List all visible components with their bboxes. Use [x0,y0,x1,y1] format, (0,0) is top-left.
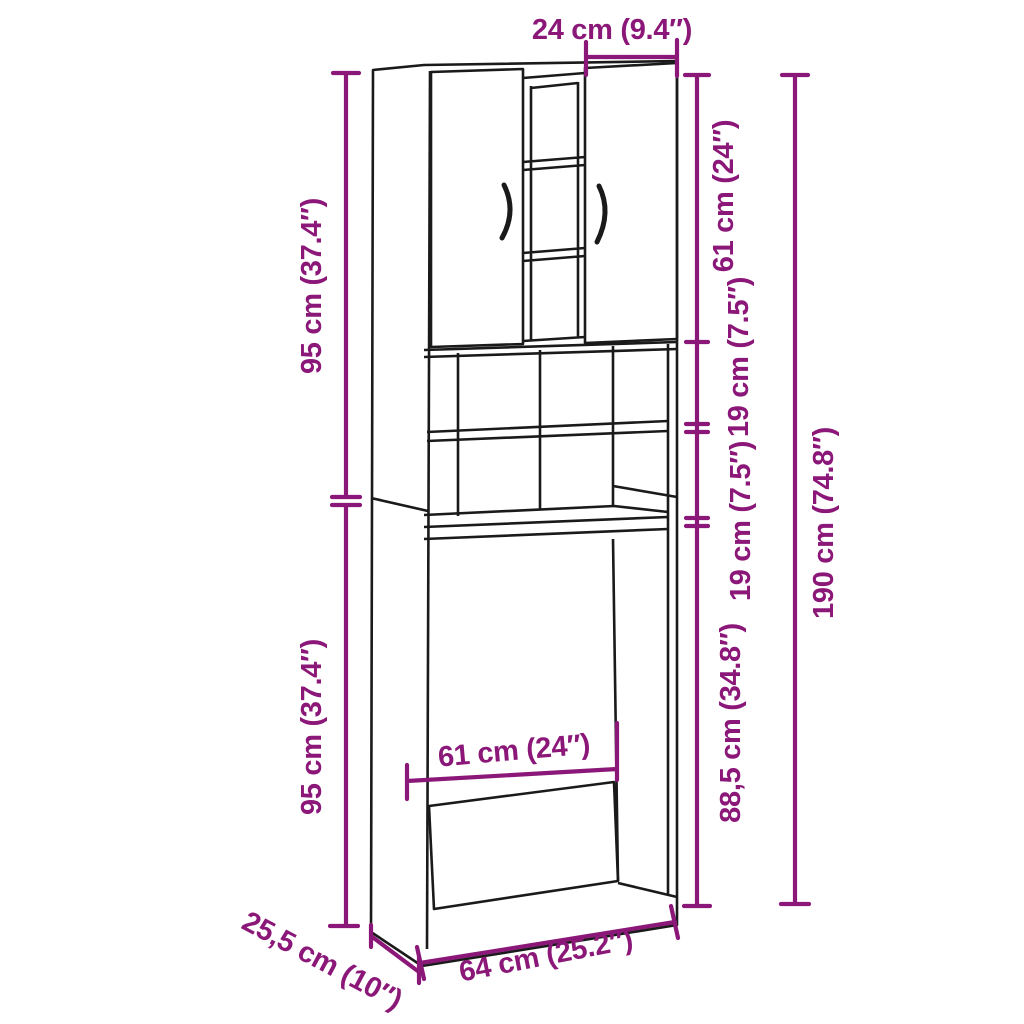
dim-total-height-label: 190 cm (74.8″) [808,427,840,619]
dimension-labels: 24 cm (9.4″) 95 cm (37.4″) 95 cm (37.4″)… [237,14,840,1016]
product-dimension-diagram: 24 cm (9.4″) 95 cm (37.4″) 95 cm (37.4″)… [0,0,1024,1024]
dim-left-upper-height-label: 95 cm (37.4″) [296,198,328,374]
dim-inner-width-label: 61 cm (24″) [437,728,592,773]
dim-bottom-width-label: 64 cm (25.2″) [457,923,636,988]
upper-cabinet-bottom-band [424,342,677,357]
dim-left-lower-height-line [330,505,360,926]
dim-left-lower-height-label: 95 cm (37.4″) [296,639,328,815]
dim-shelf-gap-1-label: 19 cm (7.5″) [723,277,755,437]
dim-depth-label: 25,5 cm (10″) [237,906,407,1017]
middle-shelf-lower [424,506,668,539]
right-door-handle [597,186,605,242]
dimension-diagram-svg: 24 cm (9.4″) 95 cm (37.4″) 95 cm (37.4″)… [0,0,1024,1024]
dim-shelf-gap-2-label: 19 cm (7.5″) [725,441,757,601]
back-bottom-rail [429,782,618,909]
dim-machine-space-height-label: 88,5 cm (34.8″) [715,623,747,823]
left-door-handle [502,185,510,238]
dim-top-width-label: 24 cm (9.4″) [532,14,692,46]
dim-door-height-label: 61 cm (24″) [708,120,740,272]
dim-left-upper-height-line [332,73,360,497]
middle-shelf-upper [427,421,668,441]
center-niche-shelves [523,73,585,341]
right-door [585,63,677,343]
cabinet-drawing [371,61,677,966]
open-shelf-back-seams [458,346,613,516]
dim-right-column-line [684,75,710,906]
dim-total-height-line [781,75,809,904]
